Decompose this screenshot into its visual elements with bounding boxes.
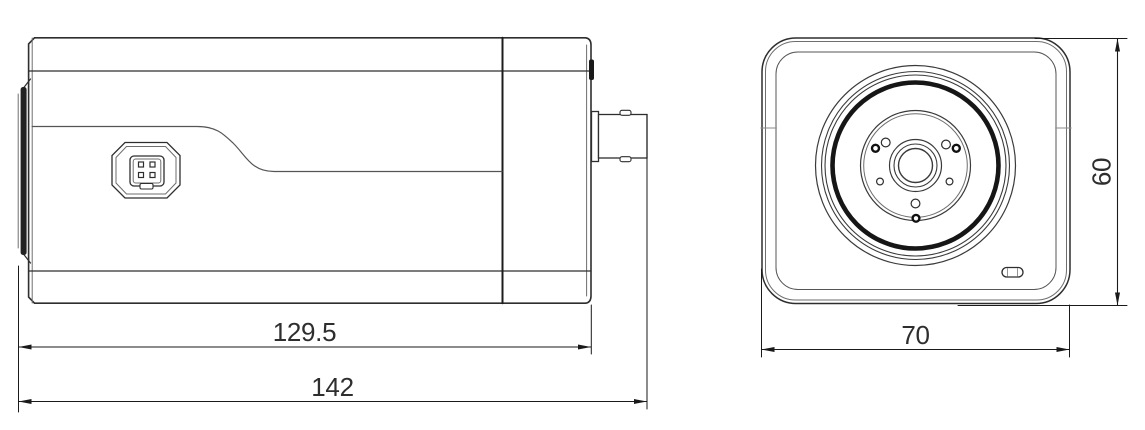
technical-drawing-canvas: 129.5 142 bbox=[0, 0, 1145, 430]
dimension-text-front-width: 70 bbox=[901, 320, 929, 350]
hole-right bbox=[946, 178, 953, 185]
bnc-body bbox=[599, 115, 648, 159]
power-connector bbox=[112, 143, 180, 199]
arrowhead-right bbox=[634, 399, 647, 404]
bnc-connector bbox=[592, 110, 648, 161]
hole-left bbox=[877, 178, 884, 185]
screw-top-left bbox=[872, 145, 879, 152]
connector-socket-outer bbox=[130, 156, 164, 186]
arrowhead-right bbox=[578, 345, 591, 350]
arrowhead-left bbox=[19, 345, 32, 350]
side-view: 129.5 142 bbox=[18, 38, 647, 412]
led-pill bbox=[1002, 268, 1023, 278]
dimension-text-front-height: 60 bbox=[1087, 158, 1117, 186]
dimension-text-body-length: 129.5 bbox=[273, 317, 337, 347]
front-view: 70 60 bbox=[761, 38, 1127, 357]
hole-bottom-center bbox=[911, 199, 920, 208]
screw-top-right bbox=[953, 145, 960, 152]
hole-top-left bbox=[881, 138, 890, 147]
arrowhead-left bbox=[762, 347, 775, 352]
drawing-sheet: 129.5 142 bbox=[0, 0, 1145, 430]
front-outline-outer bbox=[762, 38, 1070, 304]
bezel-ring-edge bbox=[21, 87, 27, 255]
arrowhead-right bbox=[1057, 347, 1070, 352]
bnc-bayonet-pin-bottom bbox=[620, 157, 631, 162]
connector-key-notch bbox=[140, 184, 153, 190]
bnc-bayonet-pin-top bbox=[620, 110, 631, 115]
hole-top-right bbox=[942, 140, 951, 149]
arrowhead-bottom bbox=[1115, 293, 1120, 306]
arrowhead-top bbox=[1115, 39, 1120, 52]
led-indicator bbox=[1002, 268, 1023, 278]
arrowhead-left bbox=[19, 399, 32, 404]
dimension-text-total-length: 142 bbox=[311, 372, 353, 402]
bnc-flange bbox=[592, 112, 599, 162]
camera-front-face bbox=[761, 38, 1071, 304]
screw-bottom bbox=[913, 215, 920, 222]
rear-top-latch bbox=[589, 60, 594, 81]
